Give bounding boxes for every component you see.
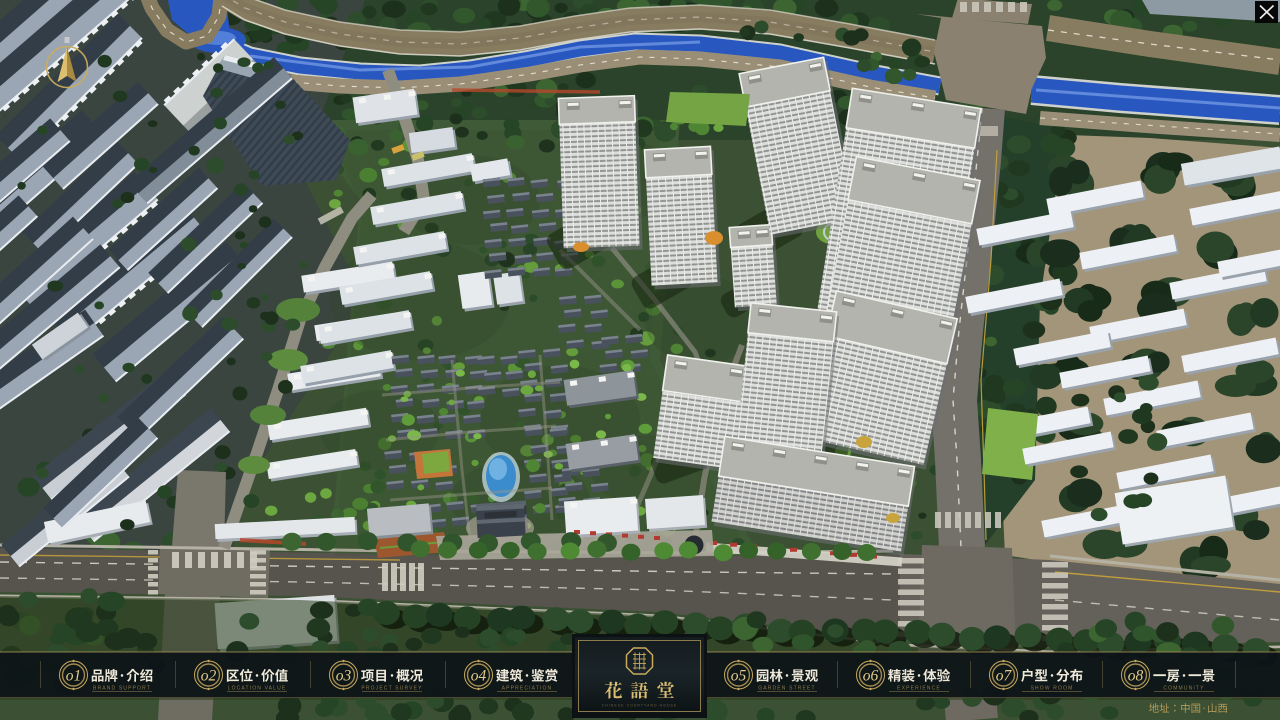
svg-text:BRAND SUPPORT: BRAND SUPPORT [93,686,151,692]
svg-text:o6: o6 [863,668,879,685]
svg-text:PROJECT SURVEY: PROJECT SURVEY [361,686,422,692]
svg-text:EXPERIENCE: EXPERIENCE [897,686,941,692]
svg-text:COMMUNITY: COMMUNITY [1163,686,1204,692]
svg-text:o4: o4 [471,668,487,685]
svg-text:CHINESE COURTYARD HOUSE: CHINESE COURTYARD HOUSE [602,704,677,708]
svg-text:o3: o3 [336,668,352,685]
svg-text:o7: o7 [996,668,1013,685]
svg-text:SHOW ROOM: SHOW ROOM [1031,686,1074,692]
svg-text:o8: o8 [1128,668,1144,685]
svg-text:o5: o5 [731,668,747,685]
svg-text:GARDEN STREET: GARDEN STREET [758,686,815,692]
svg-text:o1: o1 [66,668,82,685]
svg-text:APPRECIATION: APPRECIATION [502,686,553,692]
svg-text:LOCATION VALUE: LOCATION VALUE [228,686,287,692]
svg-text:o2: o2 [201,668,217,685]
